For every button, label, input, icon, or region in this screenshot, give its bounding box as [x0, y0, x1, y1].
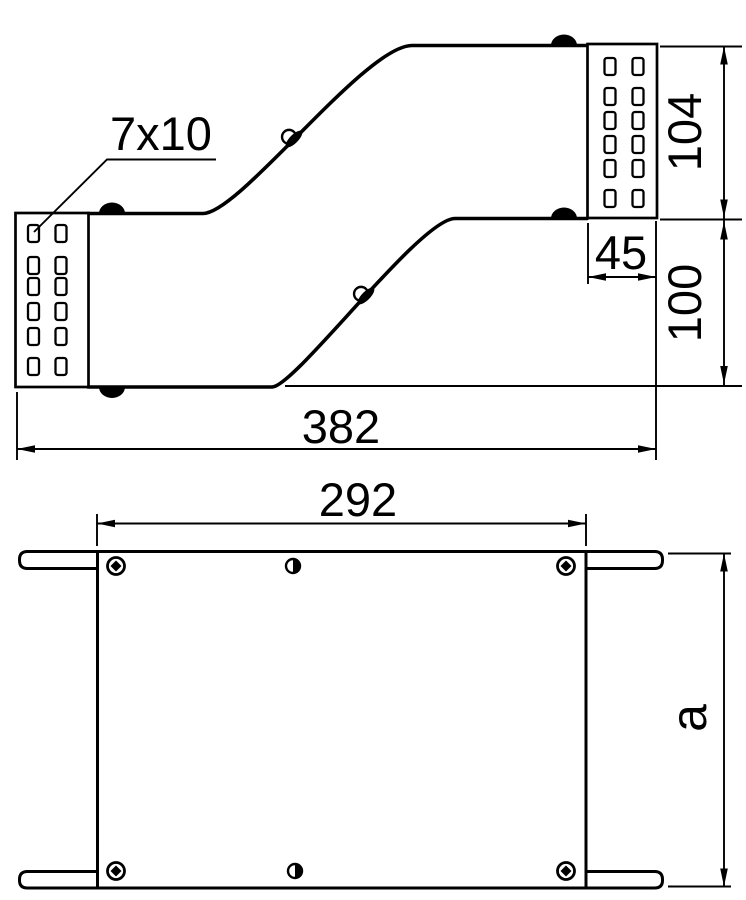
- arrowhead-icon: [720, 366, 728, 384]
- slot-hole: [633, 58, 644, 75]
- slot-hole: [633, 136, 644, 153]
- slot-hole: [56, 225, 67, 242]
- dim-text-104: 104: [658, 93, 711, 171]
- plan-view: 292 a: [20, 473, 732, 888]
- arrowhead-icon: [720, 222, 728, 240]
- arrowhead-icon: [17, 445, 35, 453]
- slot-hole: [605, 160, 616, 177]
- slot-hole: [56, 328, 67, 345]
- slot-hole: [605, 112, 616, 129]
- slot-hole: [28, 303, 39, 320]
- slot-hole: [28, 257, 39, 274]
- tab-bottom-left: [20, 872, 98, 889]
- screw-icon: [108, 863, 125, 880]
- slot-hole: [633, 112, 644, 129]
- dim-text-292: 292: [319, 473, 397, 526]
- coupler-bump-icon: [551, 35, 577, 46]
- slot-hole: [56, 257, 67, 274]
- arrowhead-icon: [720, 47, 728, 65]
- bottom-rail: [88, 219, 587, 388]
- slot-hole: [56, 358, 67, 375]
- connector-clip-icon: [278, 123, 305, 150]
- slot-size-label: 7x10: [110, 107, 212, 160]
- coupler-bump-icon: [551, 208, 577, 219]
- dimension-connector-length: 45: [588, 223, 656, 284]
- tray-body: [98, 552, 587, 889]
- coupler-bump-icon: [99, 203, 125, 214]
- dimension-offset-height: 100: [285, 220, 742, 387]
- dimension-overall-length: 382: [17, 221, 656, 460]
- slot-hole: [28, 358, 39, 375]
- arrowhead-icon: [720, 554, 728, 572]
- arrowhead-icon: [720, 200, 728, 218]
- side-view: 7x10 382 104 100: [16, 35, 743, 461]
- connector-clip-icon: [350, 280, 377, 307]
- dim-text-100: 100: [658, 264, 711, 342]
- slot-hole: [56, 303, 67, 320]
- tab-bottom-right: [586, 872, 663, 889]
- left-end-plate: [16, 213, 89, 387]
- slot-hole: [633, 190, 644, 207]
- slot-hole: [605, 88, 616, 105]
- slot-hole: [28, 328, 39, 345]
- arrowhead-icon: [97, 520, 115, 528]
- arrowhead-icon: [638, 445, 656, 453]
- dim-text-a: a: [661, 704, 717, 732]
- screw-icon: [558, 863, 575, 880]
- tab-top-right: [586, 552, 663, 569]
- dimension-end-height: 104: [658, 47, 742, 220]
- rivet-icon: [288, 864, 302, 878]
- right-end-plate: [588, 44, 658, 218]
- slot-hole: [633, 160, 644, 177]
- dimension-width-a: a: [661, 554, 731, 887]
- arrowhead-icon: [720, 869, 728, 887]
- slot-hole: [605, 190, 616, 207]
- tab-top-left: [20, 552, 98, 569]
- rivet-icon: [286, 559, 300, 573]
- dimension-hole-span: 292: [97, 473, 586, 546]
- screw-icon: [108, 558, 125, 575]
- slot-hole: [56, 278, 67, 295]
- coupler-bump-icon: [99, 387, 125, 398]
- slot-hole: [605, 58, 616, 75]
- slot-hole: [633, 88, 644, 105]
- arrowhead-icon: [568, 520, 586, 528]
- screw-icon: [558, 558, 575, 575]
- slot-hole: [605, 136, 616, 153]
- dim-text-382: 382: [302, 400, 380, 453]
- technical-drawing: 7x10 382 104 100: [0, 0, 746, 900]
- slot-hole: [28, 278, 39, 295]
- dim-text-45: 45: [595, 226, 647, 279]
